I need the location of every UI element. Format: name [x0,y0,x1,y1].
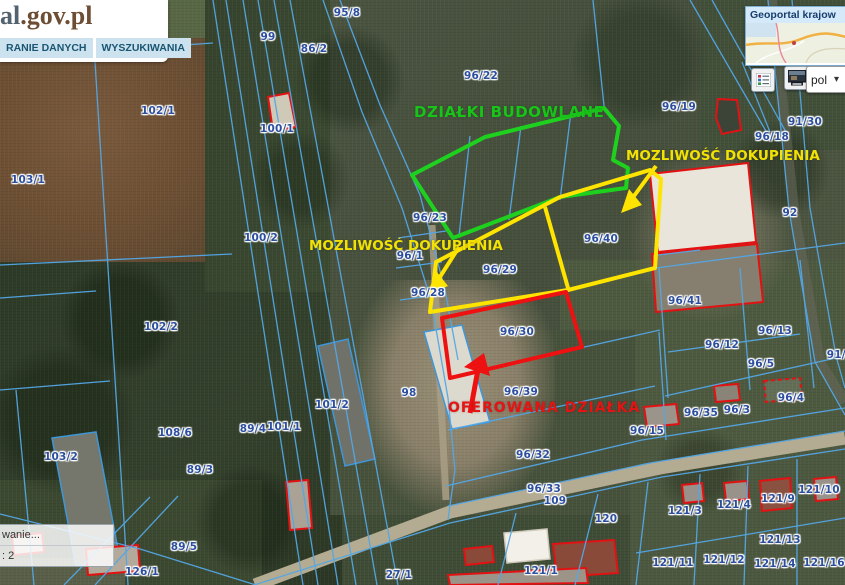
parcel-label: 121/12 [703,554,745,566]
parcel-label: 103/2 [44,451,78,463]
logo-text-blue: al [0,1,20,30]
parcel-label: 96/15 [630,425,664,437]
parcel-label: 95/8 [334,7,361,19]
parcel-label: 102/1 [141,105,175,117]
parcel-label: 98 [401,387,416,399]
aerial-photo-icon [788,70,806,86]
parcel-label: 89/5 [171,541,198,553]
parcel-label: 121/3 [668,505,702,517]
language-dropdown[interactable]: pol ▾ [806,66,845,93]
parcel-label: 92 [782,207,797,219]
parcel-label: 96/30 [500,326,534,338]
parcel-label: 96/35 [684,407,718,419]
logo-panel: al.gov.pl RANIE DANYCH WYSZUKIWANIA [0,0,168,62]
parcel-label: 96/28 [411,287,445,299]
parcel-label: 121/10 [798,484,840,496]
status-row: : 2 [0,546,113,566]
parcel-label: 96/13 [758,325,792,337]
minimap[interactable] [746,23,845,63]
logo-text-brown: .gov.pl [20,1,92,30]
parcel-label: 96/29 [483,264,517,276]
parcel-label: 101/2 [315,399,349,411]
parcel-label: 102/2 [144,321,178,333]
purchase-option-label-right: MOZLIWOŚĆ DOKUPIENIA [626,148,820,164]
parcel-labels: 95/89986/296/2296/1991/3096/18102/1100/1… [0,0,845,585]
map-viewport[interactable]: 95/89986/296/2296/1991/3096/18102/1100/1… [0,0,845,585]
main-menu-tabs: RANIE DANYCH WYSZUKIWANIA [0,38,191,58]
parcel-label: 91/30 [788,116,822,128]
parcel-label: 96/40 [584,233,618,245]
parcel-label: 100/1 [260,123,294,135]
parcel-label: 121/16 [803,557,845,569]
parcel-label: 109 [544,495,567,507]
parcel-label: 99 [260,31,275,43]
legend-icon [756,73,771,87]
parcel-label: 96/3 [724,404,751,416]
legend-button[interactable] [751,68,775,92]
parcel-label: 120 [595,513,618,525]
parcel-label: 96/12 [705,339,739,351]
chevron-down-icon: ▾ [834,74,839,85]
parcel-label: 126/1 [125,566,159,578]
parcel-label: 96/41 [668,295,702,307]
geoportal-logo[interactable]: al.gov.pl [0,1,92,31]
overview-map-panel[interactable]: Geoportal krajow [745,6,845,66]
parcel-label: 27/1 [386,569,413,581]
parcel-label: 108/6 [158,427,192,439]
parcel-label: 96/23 [413,212,447,224]
status-row: wanie... [0,525,113,546]
parcel-label: 96/19 [662,101,696,113]
language-value: pol [811,73,827,87]
parcel-label: 121/1 [524,565,558,577]
purchase-option-label-left: MOZLIWOŚĆ DOKUPIENIA [309,238,503,254]
parcel-label: 96/18 [755,131,789,143]
parcel-label: 100/2 [244,232,278,244]
building-plots-label: DZIAŁKI BUDOWLANE [414,103,604,121]
parcel-label: 89/3 [187,464,214,476]
overview-map-title: Geoportal krajow [746,7,845,23]
parcel-label: 121/4 [717,499,751,511]
tab-wyszukiwania[interactable]: WYSZUKIWANIA [96,38,191,58]
parcel-label: 96/4 [778,392,805,404]
parcel-label: 96/39 [504,386,538,398]
parcel-label: 103/1 [11,174,45,186]
parcel-label: 86/2 [301,43,328,55]
status-panel: wanie... : 2 [0,524,114,567]
parcel-label: 89/4 [240,423,267,435]
parcel-label: 121/13 [759,534,801,546]
tab-pobieranie-danych[interactable]: RANIE DANYCH [0,38,93,58]
parcel-label: 121/14 [754,558,796,570]
parcel-label: 96/33 [527,483,561,495]
parcel-label: 96/22 [464,70,498,82]
parcel-label: 121/11 [652,557,694,569]
parcel-label: 96/5 [748,358,775,370]
parcel-label: 121/9 [761,493,795,505]
parcel-label: 91/3 [827,349,845,361]
offered-plot-label: OFEROWANA DZIAŁKA [448,400,640,416]
parcel-label: 96/32 [516,449,550,461]
parcel-label: 101/1 [267,421,301,433]
